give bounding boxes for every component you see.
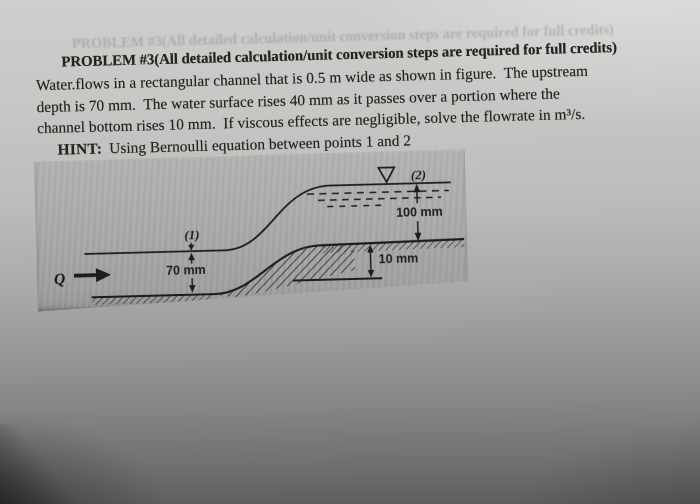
- dim-70-upper-arrow-icon: [188, 253, 195, 261]
- point-1-group: (1): [184, 227, 200, 251]
- downstream-depth-label: 100 mm: [396, 205, 443, 220]
- water-dash-row: [327, 205, 387, 207]
- water-dash-row: [318, 197, 441, 200]
- photo-of-problem-sheet: PROBLEM #3(All detailed calculation/unit…: [0, 0, 700, 504]
- problem-statement: PROBLEM #3(All detailed calculation/unit…: [35, 36, 688, 162]
- channel-flow-figure: Q (1) (2) 70 mm: [34, 149, 469, 312]
- hint-label: HINT:: [57, 141, 102, 159]
- free-surface-marker-icon: [378, 167, 394, 182]
- flow-arrow-group: Q: [54, 268, 111, 288]
- upstream-depth-label: 70 mm: [166, 263, 206, 278]
- water-dash-row: [307, 190, 449, 194]
- flow-arrow-head-icon: [96, 268, 111, 282]
- dim-10-lower-arrow-icon: [368, 270, 375, 278]
- dim-70-lower-arrow-icon: [189, 285, 196, 293]
- flow-label: Q: [54, 271, 66, 288]
- dimension-100mm: 100 mm: [395, 183, 443, 242]
- channel-flow-diagram: Q (1) (2) 70 mm: [34, 149, 469, 312]
- point-1-arrow-head-icon: [188, 245, 194, 251]
- point-2-label: (2): [411, 167, 427, 182]
- point-1-label: (1): [184, 227, 200, 242]
- bottom-rise-label: 10 mm: [378, 251, 418, 266]
- dim-100-upper-arrow-icon: [413, 184, 420, 193]
- page-content: PROBLEM #3(All detailed calculation/unit…: [0, 0, 700, 504]
- flow-arrow-shaft: [74, 273, 96, 277]
- dim-10-line: [370, 251, 371, 272]
- dimension-70mm: 70 mm: [166, 252, 207, 293]
